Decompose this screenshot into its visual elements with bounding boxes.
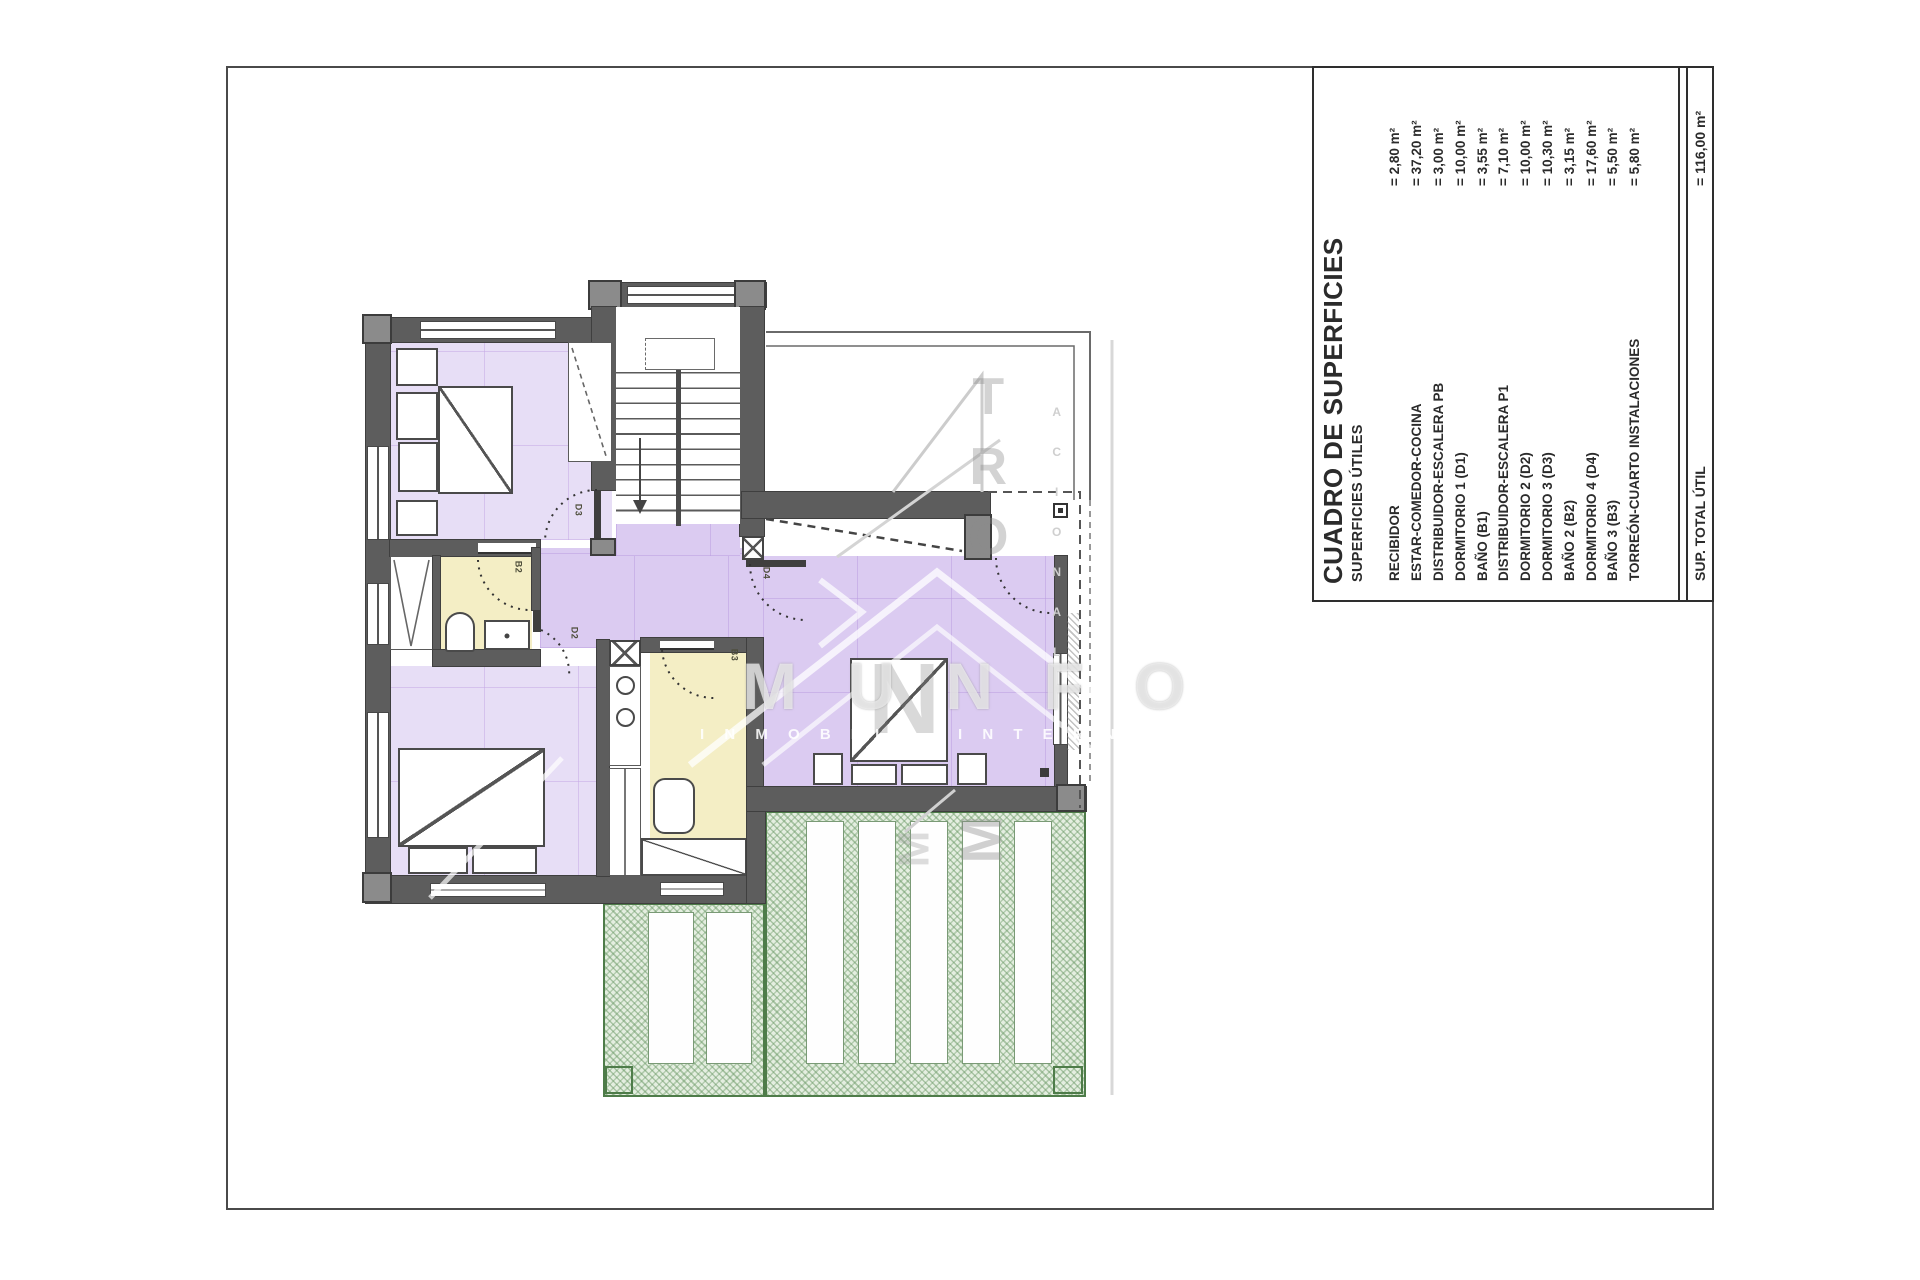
drawing-sheet: D3 B2 D2 B3 D4: [0, 0, 1920, 1280]
table-row-value: = 7,10 m²: [1496, 68, 1511, 186]
table-row-label: DORMITORIO 1 (D1): [1453, 452, 1468, 600]
table-row-value: = 10,00 m²: [1453, 68, 1468, 186]
table-row-label: RECIBIDOR: [1387, 505, 1402, 600]
table-row: TORREÓN-CUARTO INSTALACIONES= 5,80 m²: [1624, 68, 1646, 600]
table-row-label: DISTRIBUIDOR-ESCALERA P1: [1496, 385, 1511, 600]
table-divider: [1678, 68, 1680, 600]
table-row-label: DORMITORIO 4 (D4): [1584, 452, 1599, 600]
table-total-label: SUP. TOTAL ÚTIL: [1692, 466, 1708, 600]
table-row: BAÑO 3 (B3)= 5,50 m²: [1602, 68, 1624, 600]
table-row-label: DORMITORIO 2 (D2): [1518, 452, 1533, 600]
table-row: BAÑO 2 (B2)= 3,15 m²: [1558, 68, 1580, 600]
surfaces-table: CUADRO DE SUPERFICIES SUPERFICIES ÚTILES…: [1312, 66, 1714, 602]
table-row: DORMITORIO 1 (D1)= 10,00 m²: [1449, 68, 1471, 600]
table-row-value: = 3,00 m²: [1431, 68, 1446, 186]
table-total-value: = 116,00 m²: [1692, 68, 1708, 186]
table-row-value: = 3,15 m²: [1562, 68, 1577, 186]
table-row: DORMITORIO 4 (D4)= 17,60 m²: [1580, 68, 1602, 600]
table-row-label: DORMITORIO 3 (D3): [1540, 452, 1555, 600]
table-row-value: = 37,20 m²: [1409, 68, 1424, 186]
table-row: DISTRIBUIDOR-ESCALERA P1= 7,10 m²: [1493, 68, 1515, 600]
table-row-value: = 5,50 m²: [1605, 68, 1620, 186]
table-row-label: BAÑO (B1): [1475, 511, 1490, 600]
table-row: DORMITORIO 3 (D3)= 10,30 m²: [1537, 68, 1559, 600]
table-row-label: DISTRIBUIDOR-ESCALERA PB: [1431, 383, 1446, 600]
table-row-value: = 17,60 m²: [1584, 68, 1599, 186]
table-row: ESTAR-COMEDOR-COCINA= 37,20 m²: [1406, 68, 1428, 600]
table-row: DORMITORIO 2 (D2)= 10,00 m²: [1515, 68, 1537, 600]
table-row-value: = 3,55 m²: [1475, 68, 1490, 186]
table-row-value: = 10,30 m²: [1540, 68, 1555, 186]
table-row-value: = 5,80 m²: [1627, 68, 1642, 186]
table-row-label: BAÑO 2 (B2): [1562, 500, 1577, 600]
table-rows: RECIBIDOR= 2,80 m²ESTAR-COMEDOR-COCINA= …: [1384, 68, 1646, 600]
table-total-row: SUP. TOTAL ÚTIL = 116,00 m²: [1686, 68, 1712, 600]
table-row-value: = 10,00 m²: [1518, 68, 1533, 186]
table-row: BAÑO (B1)= 3,55 m²: [1471, 68, 1493, 600]
table-row-label: TORREÓN-CUARTO INSTALACIONES: [1627, 339, 1642, 600]
surfaces-table-content: CUADRO DE SUPERFICIES SUPERFICIES ÚTILES…: [1314, 68, 1712, 600]
table-row-label: ESTAR-COMEDOR-COCINA: [1409, 404, 1424, 601]
table-row: DISTRIBUIDOR-ESCALERA PB= 3,00 m²: [1428, 68, 1450, 600]
table-title: CUADRO DE SUPERFICIES: [1318, 238, 1349, 584]
table-row: RECIBIDOR= 2,80 m²: [1384, 68, 1406, 600]
table-subtitle: SUPERFICIES ÚTILES: [1350, 424, 1366, 582]
table-row-label: BAÑO 3 (B3): [1605, 500, 1620, 600]
table-row-value: = 2,80 m²: [1387, 68, 1402, 186]
